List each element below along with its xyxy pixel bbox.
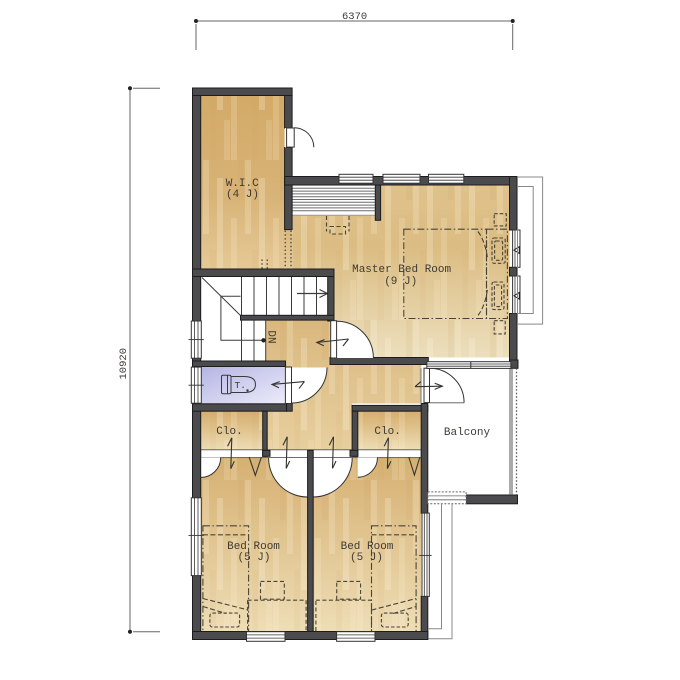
svg-text:Clo.: Clo. — [216, 426, 242, 438]
svg-text:Clo.: Clo. — [374, 426, 400, 438]
svg-text:(5 J): (5 J) — [238, 552, 271, 564]
svg-text:Master Bed Room: Master Bed Room — [352, 264, 451, 276]
svg-text:(4 J): (4 J) — [226, 189, 259, 201]
svg-text:(9 J): (9 J) — [384, 276, 417, 288]
svg-text:6370: 6370 — [342, 11, 367, 23]
svg-text:DN: DN — [264, 330, 276, 343]
svg-text:Balcony: Balcony — [444, 427, 491, 439]
svg-text:T.: T. — [235, 380, 246, 391]
svg-text:10920: 10920 — [118, 348, 130, 380]
svg-text:(5 J): (5 J) — [350, 552, 383, 564]
